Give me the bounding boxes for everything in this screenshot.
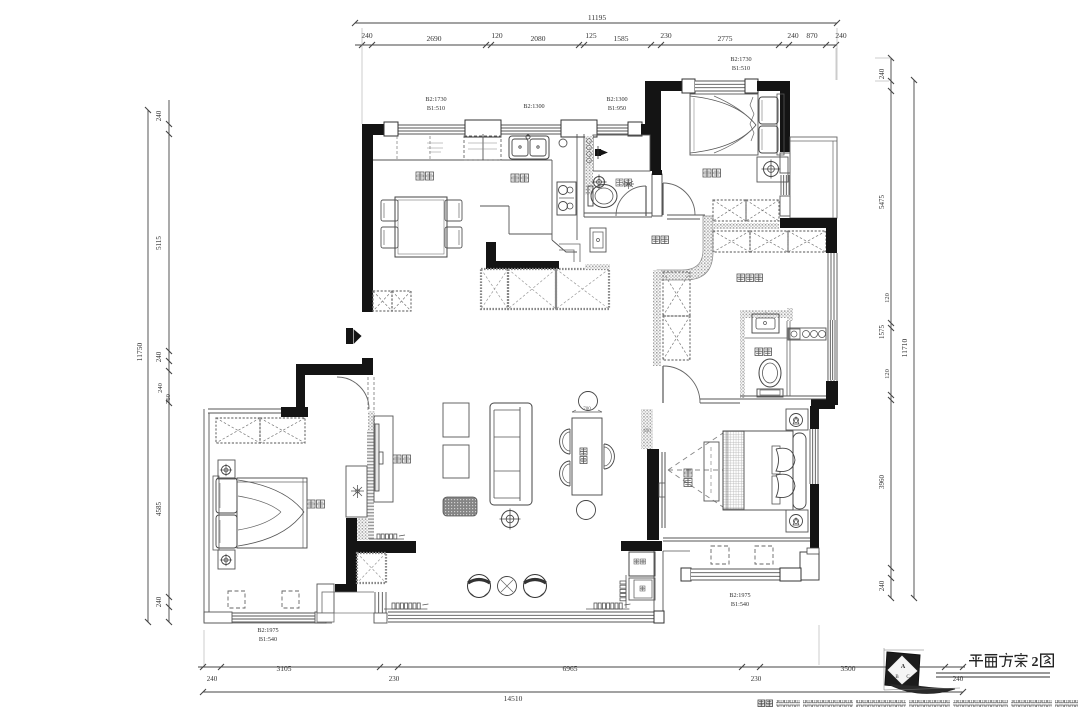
svg-text:760: 760 xyxy=(165,394,172,404)
svg-text:11750: 11750 xyxy=(135,343,144,362)
svg-text:3500: 3500 xyxy=(841,664,856,673)
svg-text:230: 230 xyxy=(660,31,672,40)
svg-text:B1:540: B1:540 xyxy=(731,601,749,608)
svg-text:870: 870 xyxy=(806,31,818,40)
svg-text:B1:510: B1:510 xyxy=(427,105,445,112)
svg-text:120: 120 xyxy=(884,293,891,303)
svg-text:240: 240 xyxy=(155,110,163,121)
svg-text:240: 240 xyxy=(155,596,163,607)
svg-text:14510: 14510 xyxy=(504,694,523,703)
svg-text:240: 240 xyxy=(207,675,218,683)
svg-text:B1:950: B1:950 xyxy=(608,105,626,112)
svg-text:120: 120 xyxy=(491,31,503,40)
svg-text:240: 240 xyxy=(787,31,799,40)
svg-text:1585: 1585 xyxy=(614,34,629,43)
svg-text:B2:1730: B2:1730 xyxy=(730,56,751,63)
svg-text:230: 230 xyxy=(751,675,762,683)
svg-text:700: 700 xyxy=(583,407,591,412)
svg-text:3105: 3105 xyxy=(277,664,292,673)
svg-text:240: 240 xyxy=(878,580,886,591)
svg-text:2: 2 xyxy=(1032,655,1039,670)
svg-text:11195: 11195 xyxy=(588,13,606,22)
svg-text:2690: 2690 xyxy=(427,34,442,43)
svg-text:3960: 3960 xyxy=(878,475,886,490)
svg-text:450: 450 xyxy=(643,429,651,434)
svg-text:B1:540: B1:540 xyxy=(259,636,277,643)
svg-text:B2:1975: B2:1975 xyxy=(257,627,278,634)
svg-text:4585: 4585 xyxy=(155,502,163,517)
svg-text:5475: 5475 xyxy=(878,195,886,210)
svg-text:240: 240 xyxy=(361,31,373,40)
svg-text:1575: 1575 xyxy=(878,325,886,340)
svg-text:240: 240 xyxy=(157,383,164,393)
svg-text:A: A xyxy=(901,664,906,670)
svg-text:240: 240 xyxy=(155,351,163,362)
svg-text:5115: 5115 xyxy=(155,236,163,250)
svg-text:2080: 2080 xyxy=(531,34,546,43)
svg-text:6965: 6965 xyxy=(563,664,578,673)
svg-text:2775: 2775 xyxy=(718,34,733,43)
svg-text:240: 240 xyxy=(953,675,964,683)
svg-text:125: 125 xyxy=(585,31,597,40)
svg-text:..: .. xyxy=(765,310,768,315)
svg-text:230: 230 xyxy=(389,675,400,683)
svg-text:B2:1975: B2:1975 xyxy=(729,592,750,599)
svg-text:120: 120 xyxy=(884,369,891,379)
svg-text:B2:1300: B2:1300 xyxy=(606,96,627,103)
svg-text:B2:1300: B2:1300 xyxy=(523,103,544,110)
svg-text:B1:510: B1:510 xyxy=(732,65,750,72)
svg-text:B2:1730: B2:1730 xyxy=(425,96,446,103)
svg-text:240: 240 xyxy=(878,68,886,79)
svg-text:11710: 11710 xyxy=(900,339,909,358)
